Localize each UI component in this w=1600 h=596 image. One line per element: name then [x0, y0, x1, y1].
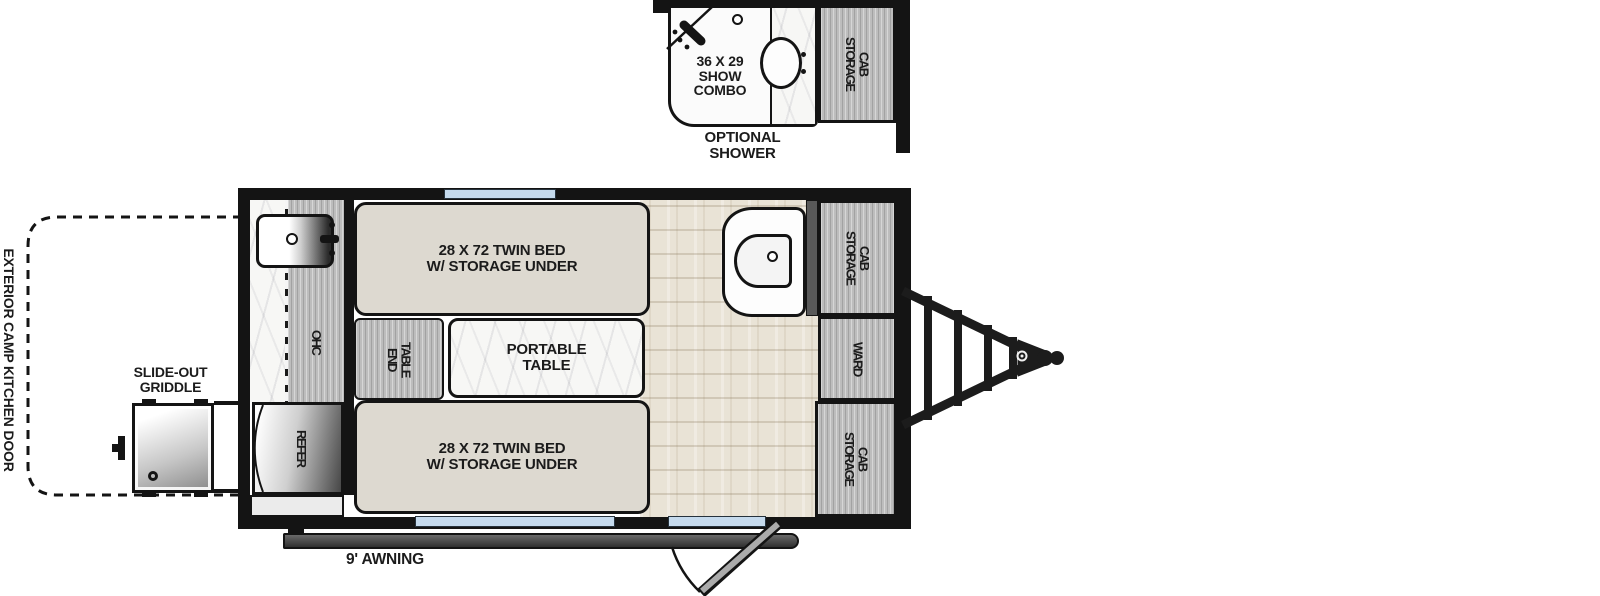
entry-door-arc: [672, 547, 700, 592]
lineart-overlay: [0, 0, 1600, 596]
shower-spray-dot: [678, 38, 683, 43]
refer-door-bow: [255, 405, 263, 492]
rv-floorplan: 36 X 29 SHOW COMBO STORAGE CAB OPTIONAL …: [0, 0, 1600, 596]
shower-spray-dot: [673, 30, 678, 35]
shower-spray-dot: [685, 45, 690, 50]
coupler-pin-dot: [1021, 355, 1024, 358]
camp-kitchen-door-swing: [28, 217, 242, 495]
entry-door-leaf: [702, 524, 778, 591]
shower-head-icon: [684, 25, 701, 41]
hitch-ball: [1050, 351, 1064, 365]
